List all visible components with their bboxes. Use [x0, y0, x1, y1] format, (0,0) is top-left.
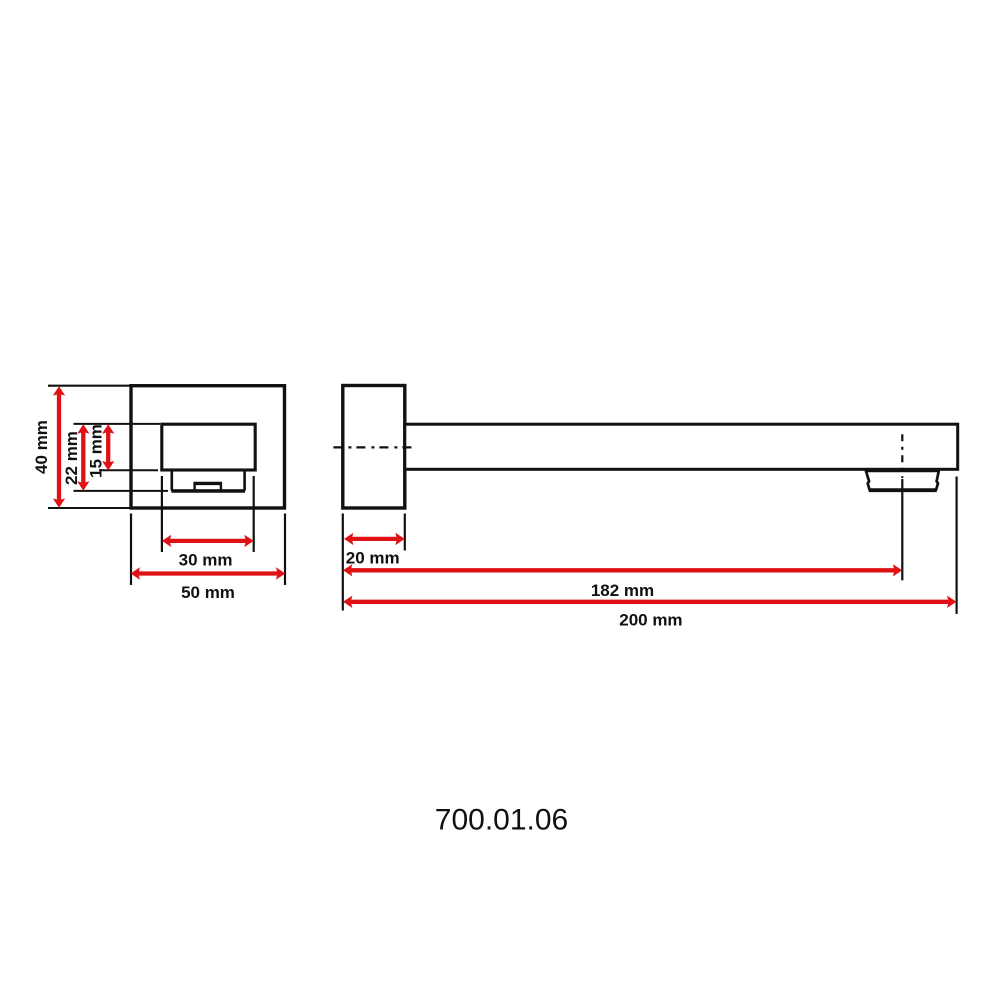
svg-text:20 mm: 20 mm — [346, 548, 400, 567]
svg-text:15 mm: 15 mm — [87, 424, 106, 478]
svg-text:30 mm: 30 mm — [179, 550, 233, 569]
svg-text:40 mm: 40 mm — [32, 420, 51, 474]
svg-text:200 mm: 200 mm — [619, 611, 682, 630]
svg-text:50 mm: 50 mm — [181, 583, 235, 602]
svg-text:22 mm: 22 mm — [62, 431, 81, 485]
svg-text:700.01.06: 700.01.06 — [435, 804, 568, 837]
svg-text:182 mm: 182 mm — [591, 581, 654, 600]
